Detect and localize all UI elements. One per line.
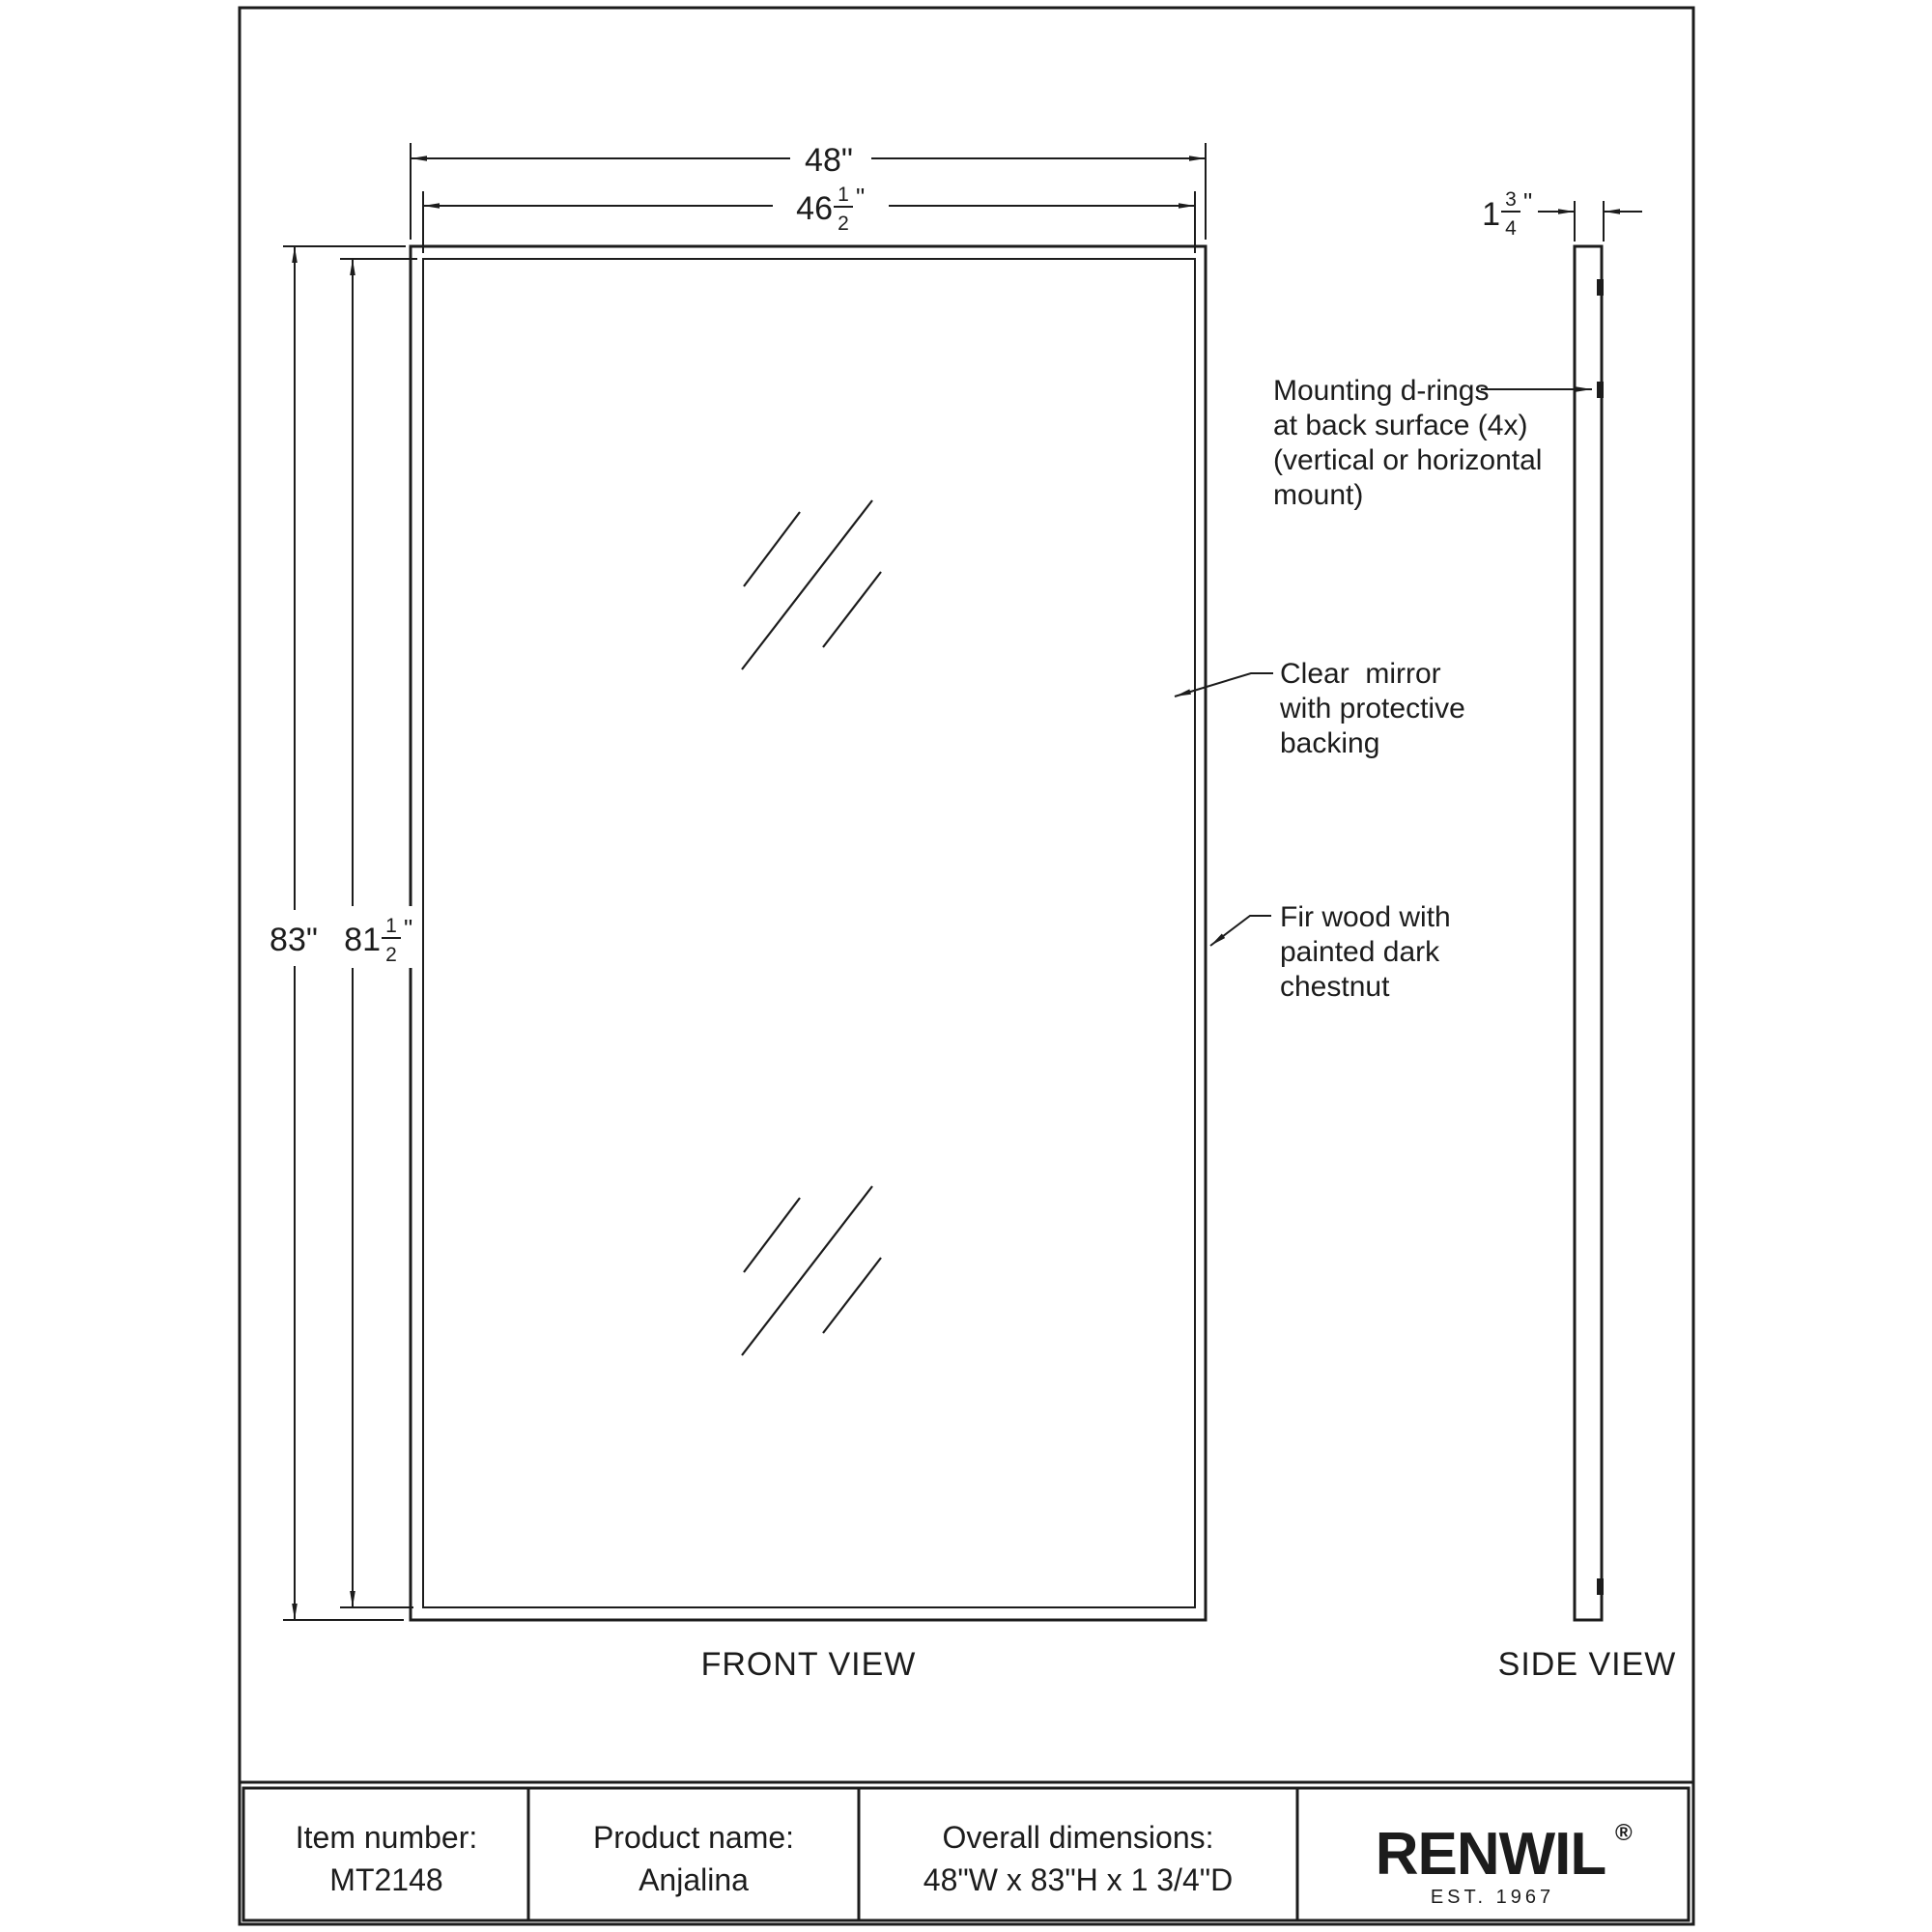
side-view [1575,246,1604,1620]
annotation-text: painted dark [1280,936,1440,968]
front-view-label: FRONT VIEW [701,1646,917,1683]
d-ring-mark [1597,279,1604,296]
annotation-text: (vertical or horizontal [1273,444,1542,476]
overall-dimensions-label: Overall dimensions: [943,1820,1214,1855]
dimension-label-whole: 1 [1482,196,1500,233]
dimension-label-unit: " [1523,187,1532,216]
dimension-label-whole: 81 [344,922,381,958]
annotation-text: mount) [1273,479,1363,511]
product-name-label: Product name: [593,1820,794,1855]
dimension-label-denominator: 4 [1505,217,1517,240]
leader-line [1210,916,1271,946]
dimension-label-whole: 46 [796,190,833,227]
side-view-label: SIDE VIEW [1498,1646,1677,1683]
mirror-reflection-line [744,1198,800,1272]
dimension-label-unit: " [404,914,412,943]
brand-logo: RENWIL [1376,1821,1606,1888]
mirror-reflection-line [744,512,800,586]
item-number-value: MT2148 [329,1862,442,1897]
page-border [240,8,1693,1924]
product-name-value: Anjalina [639,1862,749,1897]
annotation-text: at back surface (4x) [1273,410,1527,441]
front-mirror-inner [423,259,1195,1607]
dimension-height-inner: 81 1 2 " [332,259,421,1607]
dimension-label-numerator: 3 [1505,188,1517,211]
annotation-text: Fir wood with [1280,901,1451,933]
annotation-wood: Fir wood with painted dark chestnut [1210,901,1451,1003]
brand-tagline: EST. 1967 [1431,1887,1554,1908]
dimension-label-denominator: 2 [385,944,397,966]
dimension-label-unit: " [856,183,865,212]
overall-dimensions-value: 48"W x 83"H x 1 3/4"D [923,1862,1233,1897]
annotation-text: Mounting d-rings [1273,375,1489,407]
annotation-text: Clear mirror [1280,658,1441,690]
annotation-text: chestnut [1280,971,1390,1003]
registered-trademark-icon: ® [1615,1820,1633,1846]
item-number-label: Item number: [296,1820,478,1855]
mirror-reflection-line [823,1258,881,1333]
dimension-label-numerator: 1 [838,184,849,206]
dimension-label-height-outer: 83" [270,922,318,958]
front-view [411,246,1206,1620]
annotation-text: backing [1280,727,1379,759]
side-profile-bar [1575,246,1602,1620]
dimension-label-numerator: 1 [385,915,397,937]
annotation-mirror: Clear mirror with protective backing [1175,658,1465,759]
dimension-depth: 1 3 4 " [1482,187,1642,241]
annotation-text: with protective [1279,693,1465,724]
d-ring-mark [1597,1578,1604,1595]
title-block: Item number: MT2148 Product name: Anjali… [240,1782,1693,1920]
dimension-label-width-outer: 48" [805,142,853,179]
mirror-reflection-line [742,1186,872,1355]
mirror-reflection-line [823,572,881,647]
leader-line [1175,673,1273,696]
spec-sheet-drawing: 48" 46 1 2 " 83" 81 1 2 " 1 [0,0,1932,1932]
annotation-mounting: Mounting d-rings at back surface (4x) (v… [1273,375,1592,511]
dimension-label-denominator: 2 [838,213,849,235]
d-ring-mark [1597,382,1604,398]
dimension-width-inner: 46 1 2 " [423,179,1195,253]
front-frame-outer [411,246,1206,1620]
mirror-reflection-line [742,500,872,669]
